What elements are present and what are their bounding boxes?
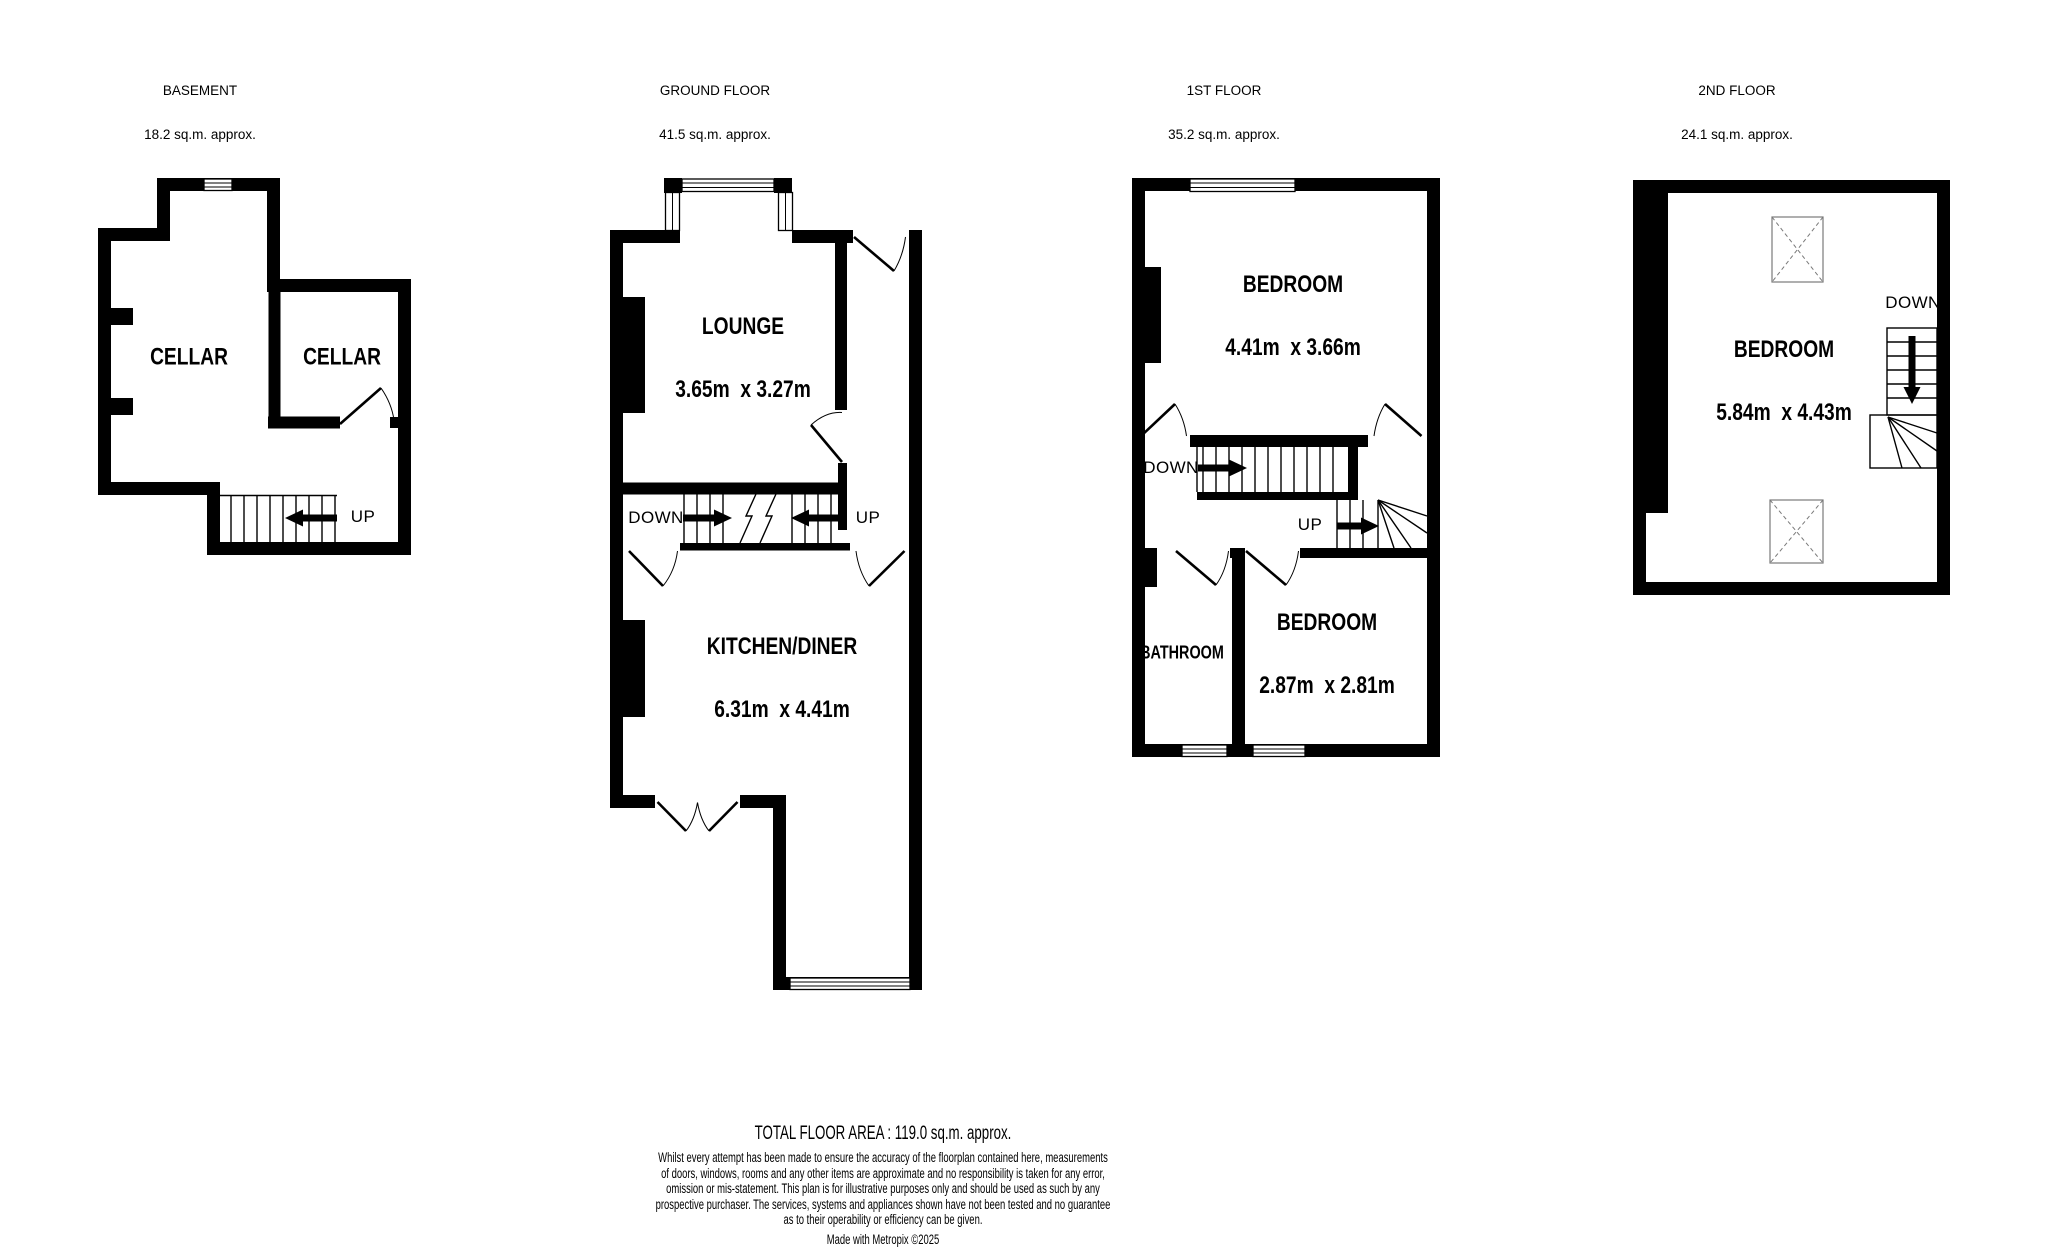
floor-name: BASEMENT: [144, 84, 256, 99]
room-name: BATHROOM: [1140, 643, 1224, 664]
disclaimer-line: omission or mis-statement. This plan is …: [428, 1181, 1338, 1197]
room-label-cellar-2: CELLAR: [303, 305, 381, 410]
front-window: [1190, 179, 1295, 192]
chimney-breast: [111, 398, 133, 415]
room-name: CELLAR: [150, 347, 228, 368]
thick-side-wall: [1646, 193, 1668, 513]
floor-name: 1ST FLOOR: [1168, 84, 1280, 99]
room-label-bedroom-3: BEDROOM 5.84m x 4.43m: [1716, 297, 1852, 465]
bathroom-stub-wall: [1145, 548, 1157, 587]
room-label-cellar-1: CELLAR: [150, 305, 228, 410]
stair-label-down: DOWN: [1885, 293, 1940, 313]
room-dims: 6.31m x 4.41m: [707, 699, 857, 720]
room-name: BEDROOM: [1259, 612, 1395, 633]
basement-window: [204, 179, 232, 191]
stair-label-down: DOWN: [1143, 458, 1198, 478]
room-name: BEDROOM: [1716, 339, 1852, 360]
room-dims: 4.41m x 3.66m: [1225, 337, 1361, 358]
chimney-breast: [622, 297, 645, 413]
room-dims: 5.84m x 4.43m: [1716, 402, 1852, 423]
disclaimer-line: as to their operability or efficiency ca…: [428, 1212, 1338, 1228]
bay-window: [664, 178, 793, 231]
skylight: [1770, 500, 1823, 563]
floor-area: 18.2 sq.m. approx.: [144, 128, 256, 143]
floor-name: GROUND FLOOR: [659, 84, 771, 99]
metropix-credit: Made with Metropix ©2025: [428, 1232, 1338, 1248]
stairs-bottom-rail: [680, 543, 850, 551]
ground-floor-title: GROUND FLOOR 41.5 sq.m. approx.: [659, 55, 771, 172]
footer: TOTAL FLOOR AREA : 119.0 sq.m. approx. W…: [428, 1122, 1338, 1248]
room-label-bathroom: BATHROOM: [1140, 601, 1224, 706]
disclaimer-line: Whilst every attempt has been made to en…: [428, 1150, 1338, 1166]
basement-title: BASEMENT 18.2 sq.m. approx.: [144, 55, 256, 172]
floorplan-graphics: [0, 0, 2048, 1252]
room-name: CELLAR: [303, 347, 381, 368]
chimney-breast: [622, 620, 645, 717]
room-name: LOUNGE: [675, 316, 811, 337]
patio-door-opening: [655, 795, 740, 810]
floor-area: 41.5 sq.m. approx.: [659, 128, 771, 143]
floorplan-page: BASEMENT 18.2 sq.m. approx. GROUND FLOOR…: [0, 0, 2048, 1252]
bedroom2-window: [1253, 745, 1305, 757]
total-floor-area: TOTAL FLOOR AREA : 119.0 sq.m. approx.: [428, 1122, 1338, 1145]
stair-label-down: DOWN: [628, 508, 683, 528]
skylight: [1772, 217, 1823, 282]
stair-label-up: UP: [1298, 515, 1322, 535]
room-label-bedroom-1: BEDROOM 4.41m x 3.66m: [1225, 232, 1361, 400]
first-floor-title: 1ST FLOOR 35.2 sq.m. approx.: [1168, 55, 1280, 172]
chimney-breast: [1145, 267, 1161, 363]
room-dims: 2.87m x 2.81m: [1259, 675, 1395, 696]
room-name: KITCHEN/DINER: [707, 636, 857, 657]
room-label-lounge: LOUNGE 3.65m x 3.27m: [675, 274, 811, 442]
second-floor-title: 2ND FLOOR 24.1 sq.m. approx.: [1681, 55, 1793, 172]
bay-opening: [680, 229, 792, 245]
room-name: BEDROOM: [1225, 274, 1361, 295]
bathroom-window: [1182, 745, 1227, 757]
floor-area: 35.2 sq.m. approx.: [1168, 128, 1280, 143]
floor-area: 24.1 sq.m. approx.: [1681, 128, 1793, 143]
rear-window: [790, 978, 910, 990]
room-dims: 3.65m x 3.27m: [675, 379, 811, 400]
room-label-kitchen-diner: KITCHEN/DINER 6.31m x 4.41m: [707, 594, 857, 762]
stair-label-up: UP: [856, 508, 880, 528]
room-label-bedroom-2: BEDROOM 2.87m x 2.81m: [1259, 570, 1395, 738]
floor-name: 2ND FLOOR: [1681, 84, 1793, 99]
disclaimer-line: prospective purchaser. The services, sys…: [428, 1197, 1338, 1213]
stair-label-up: UP: [351, 507, 375, 527]
disclaimer-line: of doors, windows, rooms and any other i…: [428, 1166, 1338, 1182]
chimney-breast: [111, 308, 133, 325]
